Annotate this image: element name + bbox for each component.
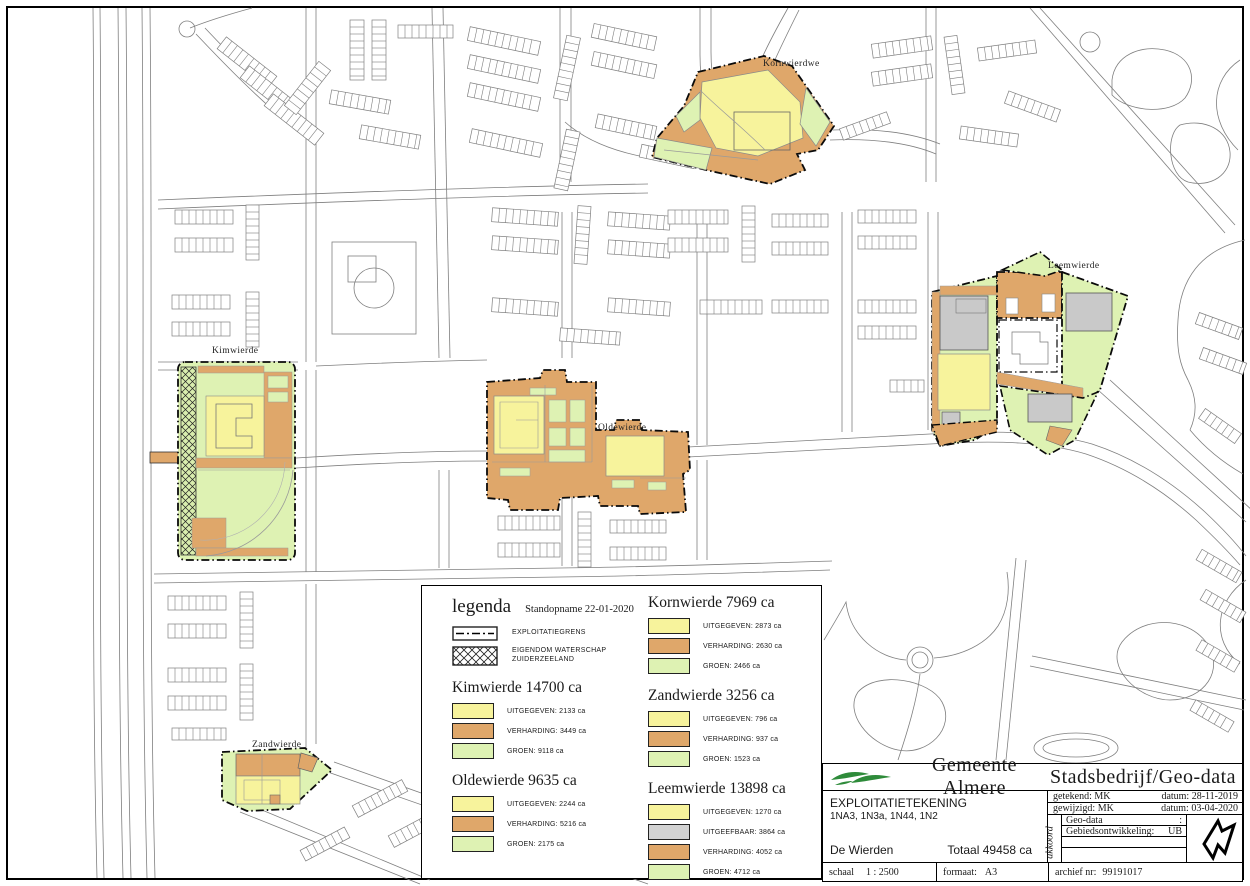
legend-sections-right: Kornwierde 7969 caUITGEGEVEN: 2873 caVER… bbox=[648, 594, 818, 880]
approval-row-geodata: Geo-data : bbox=[1062, 815, 1186, 826]
approval-value: : bbox=[1179, 815, 1182, 826]
approval-value: UB bbox=[1168, 826, 1182, 837]
drawn-by: getekend: MK bbox=[1048, 791, 1139, 802]
north-arrow-box bbox=[1186, 815, 1242, 862]
uitgegeven-swatch bbox=[452, 796, 494, 812]
legend-row-verharding: VERHARDING: 4052 ca bbox=[648, 844, 818, 860]
modified-by: gewijzigd: MK bbox=[1048, 803, 1139, 814]
verharding-swatch bbox=[452, 723, 494, 739]
legend-symbol-label: EIGENDOM WATERSCHAP ZUIDERZEELAND bbox=[512, 647, 622, 665]
approval-row-empty bbox=[1062, 848, 1186, 859]
title-block-left: EXPLOITATIETEKENING 1NA3, 1N3a, 1N44, 1N… bbox=[823, 791, 1048, 862]
verharding-swatch bbox=[452, 816, 494, 832]
legend-symbol-eigendom: EIGENDOM WATERSCHAP ZUIDERZEELAND bbox=[452, 646, 642, 666]
title-block-bottom: schaal 1 : 2500 formaat: A3 archief nr: … bbox=[823, 862, 1242, 881]
legend-section-kornwierde: Kornwierde 7969 caUITGEGEVEN: 2873 caVER… bbox=[648, 594, 818, 674]
legend-row-text: VERHARDING: 3449 ca bbox=[507, 728, 586, 735]
legend-row-verharding: VERHARDING: 3449 ca bbox=[452, 723, 642, 739]
zone-leemwierde bbox=[932, 252, 1128, 455]
approval-label: Geo-data bbox=[1066, 815, 1103, 826]
legend-section-title: Oldewierde 9635 ca bbox=[452, 772, 642, 790]
north-arrow-icon bbox=[1192, 816, 1238, 862]
drawn-row: getekend: MK datum: 28-11-2019 bbox=[1048, 791, 1242, 803]
exploitation-drawing-page: Kornwierdwe Kimwierde Oldewierde Zandwie… bbox=[0, 0, 1250, 886]
akkoord-label: akkoord bbox=[1045, 826, 1056, 858]
legend-subtitle: Standopname 22-01-2020 bbox=[525, 604, 634, 615]
legend-row-verharding: VERHARDING: 2630 ca bbox=[648, 638, 818, 654]
legend-row-text: UITGEGEVEN: 796 ca bbox=[703, 716, 777, 723]
legend-section-title: Zandwierde 3256 ca bbox=[648, 687, 818, 705]
area-name: De Wierden bbox=[830, 843, 893, 857]
legend-row-uitgeefbaar: UITGEEFBAAR: 3864 ca bbox=[648, 824, 818, 840]
legend-row-verharding: VERHARDING: 937 ca bbox=[648, 731, 818, 747]
legend-row-uitgegeven: UITGEGEVEN: 1270 ca bbox=[648, 804, 818, 820]
groen-swatch bbox=[452, 836, 494, 852]
legend-row-uitgegeven: UITGEGEVEN: 2873 ca bbox=[648, 618, 818, 634]
approval-label: Gebiedsontwikkeling: bbox=[1066, 826, 1154, 837]
format-value: A3 bbox=[985, 867, 997, 878]
zone-kimwierde bbox=[150, 362, 295, 560]
legend-section-zandwierde: Zandwierde 3256 caUITGEGEVEN: 796 caVERH… bbox=[648, 687, 818, 767]
approval-row-empty bbox=[1062, 837, 1186, 848]
groen-swatch bbox=[648, 751, 690, 767]
scale-value: 1 : 2500 bbox=[866, 867, 899, 878]
modified-row: gewijzigd: MK datum: 03-04-2020 bbox=[1048, 803, 1242, 815]
scale-label: schaal bbox=[829, 867, 854, 878]
groen-swatch bbox=[452, 743, 494, 759]
legend-symbol-exploitatiegrens: EXPLOITATIEGRENS bbox=[452, 626, 642, 641]
legend-row-groen: GROEN: 2175 ca bbox=[452, 836, 642, 852]
legend-row-text: GROEN: 9118 ca bbox=[507, 748, 564, 755]
title-block-right: getekend: MK datum: 28-11-2019 gewijzigd… bbox=[1048, 791, 1242, 862]
legend-row-text: VERHARDING: 4052 ca bbox=[703, 849, 782, 856]
map-label-leemwierde: Leemwierde bbox=[1048, 261, 1099, 271]
legend-row-verharding: VERHARDING: 5216 ca bbox=[452, 816, 642, 832]
map-label-kimwierde: Kimwierde bbox=[212, 346, 258, 356]
title-block-header: Gemeente Almere Stadsbedrijf/Geo-data bbox=[823, 764, 1242, 791]
legend-title: legenda bbox=[452, 596, 511, 618]
legend-row-text: GROEN: 1523 ca bbox=[703, 756, 760, 763]
legend-left-column: legenda Standopname 22-01-2020 EXPLOITAT… bbox=[452, 586, 642, 856]
legend-row-text: VERHARDING: 5216 ca bbox=[507, 821, 586, 828]
verharding-swatch bbox=[648, 731, 690, 747]
drawn-date: datum: 28-11-2019 bbox=[1139, 791, 1242, 802]
legend-row-text: UITGEGEVEN: 1270 ca bbox=[703, 809, 782, 816]
title-block: Gemeente Almere Stadsbedrijf/Geo-data EX… bbox=[822, 763, 1243, 882]
legend-row-groen: GROEN: 2466 ca bbox=[648, 658, 818, 674]
crosshatch-symbol-icon bbox=[452, 646, 498, 666]
legend-right-column: Kornwierde 7969 caUITGEGEVEN: 2873 caVER… bbox=[648, 586, 818, 884]
uitgeefbaar-swatch bbox=[648, 824, 690, 840]
uitgegeven-swatch bbox=[648, 711, 690, 727]
area-total: Totaal 49458 ca bbox=[947, 843, 1032, 857]
legend-symbol-label: EXPLOITATIEGRENS bbox=[512, 629, 622, 638]
legend-section-title: Kornwierde 7969 ca bbox=[648, 594, 818, 612]
legend-row-uitgegeven: UITGEGEVEN: 796 ca bbox=[648, 711, 818, 727]
legend-row-text: UITGEGEVEN: 2133 ca bbox=[507, 708, 586, 715]
akkoord-strip: akkoord bbox=[1048, 815, 1062, 862]
format-label: formaat: bbox=[943, 867, 977, 878]
groen-swatch bbox=[648, 864, 690, 880]
legend-section-leemwierde: Leemwierde 13898 caUITGEGEVEN: 1270 caUI… bbox=[648, 780, 818, 880]
map-label-oldewierde: Oldewierde bbox=[598, 423, 646, 433]
legend-row-text: GROEN: 2175 ca bbox=[507, 841, 564, 848]
legend-row-text: VERHARDING: 937 ca bbox=[703, 736, 778, 743]
legend-row-text: UITGEEFBAAR: 3864 ca bbox=[703, 829, 785, 836]
legend-row-groen: GROEN: 9118 ca bbox=[452, 743, 642, 759]
uitgegeven-swatch bbox=[648, 618, 690, 634]
approval-rows: Geo-data : Gebiedsontwikkeling: UB bbox=[1062, 815, 1186, 862]
legend-section-oldewierde: Oldewierde 9635 caUITGEGEVEN: 2244 caVER… bbox=[452, 772, 642, 852]
verharding-swatch bbox=[648, 638, 690, 654]
groen-swatch bbox=[648, 658, 690, 674]
map-label-zandwierde: Zandwierde bbox=[252, 740, 301, 750]
legend-symbols: EXPLOITATIEGRENS EIGENDOM WATERSCHAP ZUI… bbox=[452, 626, 642, 666]
verharding-swatch bbox=[648, 844, 690, 860]
zone-oldewierde bbox=[487, 370, 690, 514]
zone-zandwierde bbox=[222, 748, 332, 811]
doc-codes: 1NA3, 1N3a, 1N44, 1N2 bbox=[830, 811, 1041, 822]
legend-row-text: VERHARDING: 2630 ca bbox=[703, 643, 782, 650]
legend-section-kimwierde: Kimwierde 14700 caUITGEGEVEN: 2133 caVER… bbox=[452, 679, 642, 759]
uitgegeven-swatch bbox=[452, 703, 494, 719]
modified-date: datum: 03-04-2020 bbox=[1139, 803, 1242, 814]
legend-row-text: GROEN: 2466 ca bbox=[703, 663, 760, 670]
exploitatiegrens-symbol-icon bbox=[452, 626, 498, 641]
legend-sections-left: Kimwierde 14700 caUITGEGEVEN: 2133 caVER… bbox=[452, 679, 642, 852]
approval-row-gebiedsontwikkeling: Gebiedsontwikkeling: UB bbox=[1062, 826, 1186, 837]
legend-section-title: Leemwierde 13898 ca bbox=[648, 780, 818, 798]
legend-row-text: UITGEGEVEN: 2873 ca bbox=[703, 623, 782, 630]
legend-row-groen: GROEN: 4712 ca bbox=[648, 864, 818, 880]
legend-row-groen: GROEN: 1523 ca bbox=[648, 751, 818, 767]
legend-panel: legenda Standopname 22-01-2020 EXPLOITAT… bbox=[421, 585, 822, 879]
legend-row-uitgegeven: UITGEGEVEN: 2244 ca bbox=[452, 796, 642, 812]
legend-section-title: Kimwierde 14700 ca bbox=[452, 679, 642, 697]
gemeente-almere-logo-icon bbox=[827, 766, 899, 788]
legend-row-text: GROEN: 4712 ca bbox=[703, 869, 760, 876]
title-block-dept: Stadsbedrijf/Geo-data bbox=[1050, 766, 1236, 789]
archive-label: archief nr: bbox=[1055, 867, 1096, 878]
doc-type: EXPLOITATIETEKENING bbox=[830, 796, 1041, 810]
legend-row-text: UITGEGEVEN: 2244 ca bbox=[507, 801, 586, 808]
uitgegeven-swatch bbox=[648, 804, 690, 820]
archive-value: 99191017 bbox=[1102, 867, 1142, 878]
legend-row-uitgegeven: UITGEGEVEN: 2133 ca bbox=[452, 703, 642, 719]
map-label-kornwierde: Kornwierdwe bbox=[763, 59, 820, 69]
